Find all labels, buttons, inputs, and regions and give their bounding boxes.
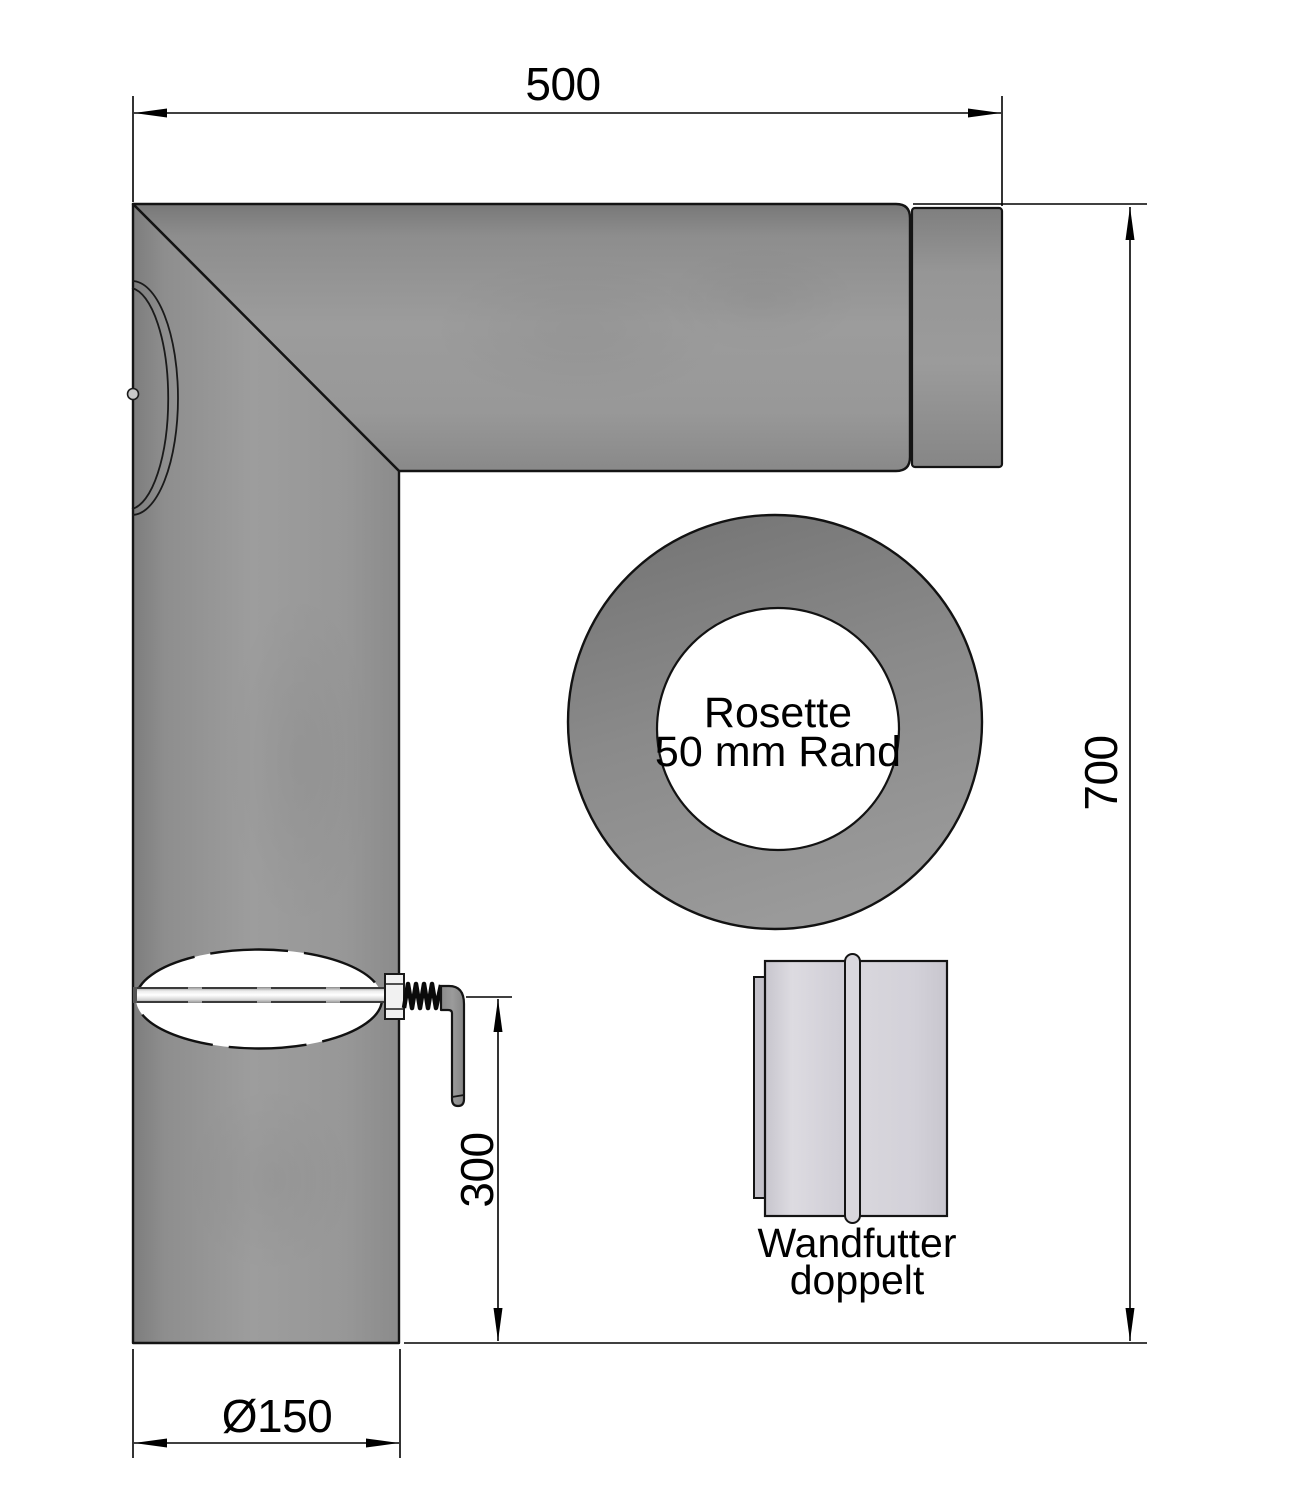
rosette-label: Rosette 50 mm Rand (655, 694, 901, 772)
dim-300-label: 300 (454, 1132, 500, 1207)
damper-thread (404, 984, 441, 1008)
damper-axle (133, 987, 390, 1003)
rosette-label-line2: 50 mm Rand (655, 733, 901, 772)
damper-handle (441, 986, 464, 1106)
wall-sleeve (754, 954, 947, 1223)
damper-axle-end (133, 987, 137, 1003)
dim-500-label: 500 (525, 61, 600, 107)
wall-sleeve-center-ring (845, 954, 860, 1223)
damper-nut (385, 974, 404, 1019)
pipe-end-collar (912, 208, 1002, 467)
bead-rivet (128, 389, 139, 400)
wall-sleeve-label: Wandfutter doppelt (757, 1225, 956, 1299)
dim-diameter-label: Ø150 (222, 1393, 333, 1439)
technical-drawing-canvas: 500 700 300 Ø150 Rosette 50 mm Rand Wand… (0, 0, 1292, 1500)
wall-sleeve-label-line2: doppelt (757, 1262, 956, 1299)
dim-700-label: 700 (1078, 735, 1124, 810)
